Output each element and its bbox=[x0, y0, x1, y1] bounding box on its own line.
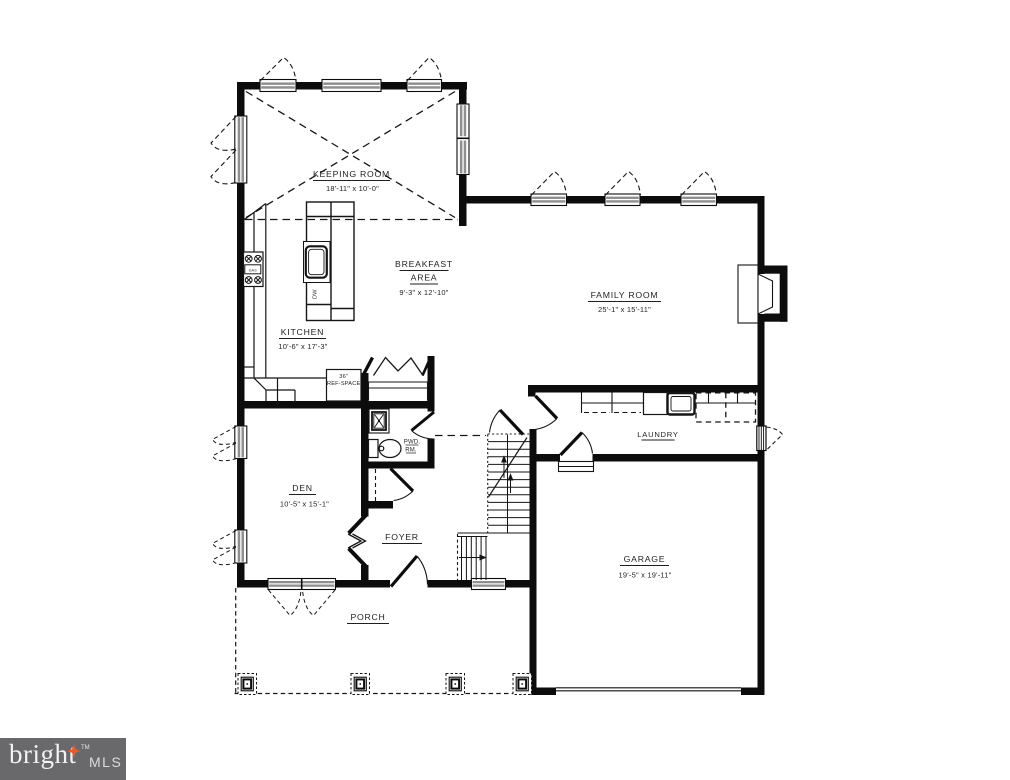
svg-text:KEEPING ROOM: KEEPING ROOM bbox=[313, 169, 390, 179]
svg-text:10'-5" x 15'-1": 10'-5" x 15'-1" bbox=[280, 500, 329, 509]
svg-text:KITCHEN: KITCHEN bbox=[281, 327, 324, 337]
svg-text:RM.: RM. bbox=[405, 448, 417, 454]
svg-text:DW: DW bbox=[313, 289, 319, 299]
svg-text:LAUNDRY: LAUNDRY bbox=[637, 430, 678, 439]
svg-text:FOYER: FOYER bbox=[385, 532, 419, 542]
svg-text:19'-5" x 19'-11": 19'-5" x 19'-11" bbox=[619, 571, 672, 580]
svg-text:36": 36" bbox=[339, 374, 348, 380]
svg-text:BREAKFAST: BREAKFAST bbox=[395, 259, 453, 269]
svg-text:FAMILY ROOM: FAMILY ROOM bbox=[591, 290, 659, 300]
svg-text:18'-11" x 10'-0": 18'-11" x 10'-0" bbox=[326, 184, 379, 193]
svg-text:25'-1" x 15'-11": 25'-1" x 15'-11" bbox=[598, 305, 651, 314]
svg-text:DEN: DEN bbox=[292, 483, 313, 493]
svg-text:10'-6" x 17'-3": 10'-6" x 17'-3" bbox=[278, 342, 327, 351]
svg-text:9'-3" x 12'-10": 9'-3" x 12'-10" bbox=[399, 288, 448, 297]
svg-text:GAS: GAS bbox=[249, 269, 258, 273]
svg-text:AREA: AREA bbox=[411, 273, 438, 283]
svg-text:REF-SPACE: REF-SPACE bbox=[327, 381, 360, 387]
svg-text:PORCH: PORCH bbox=[350, 612, 385, 622]
svg-text:GARAGE: GARAGE bbox=[624, 554, 666, 564]
svg-text:PWD.: PWD. bbox=[404, 440, 421, 446]
